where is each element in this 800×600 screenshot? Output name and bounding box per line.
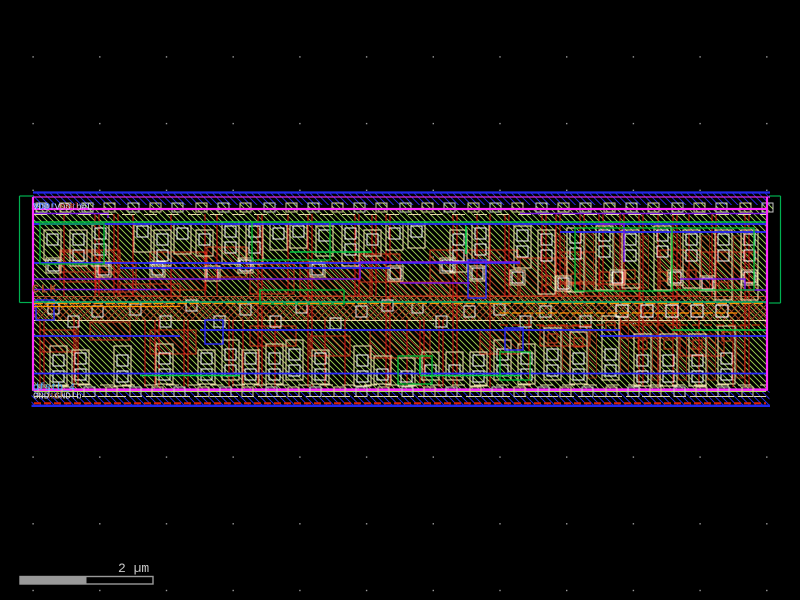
svg-text:na#l: na#l: [60, 203, 79, 212]
svg-text:nd!: nd!: [48, 392, 64, 402]
svg-text:VDD!: VDD!: [34, 202, 56, 212]
svg-text:2 µm: 2 µm: [118, 561, 149, 576]
svg-text:CLK: CLK: [32, 283, 58, 297]
